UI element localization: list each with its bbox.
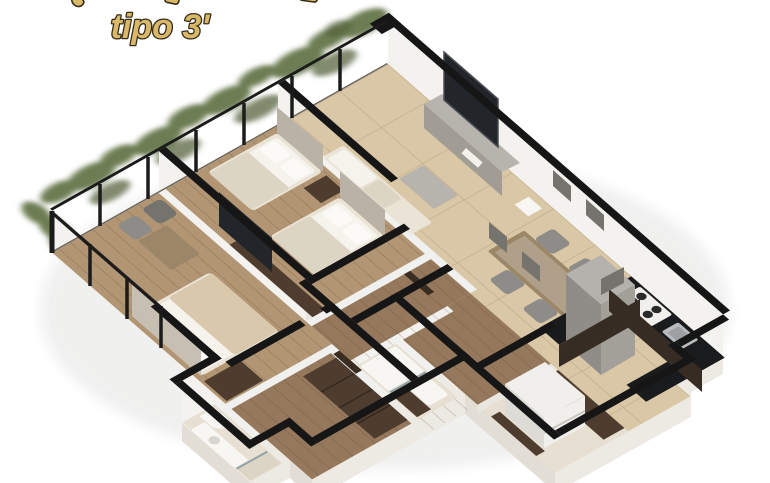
cropped-glyph bbox=[164, 0, 179, 5]
cropped-title-remnant bbox=[72, 0, 318, 7]
cropped-glyph bbox=[299, 0, 318, 2]
plan-title: tipo 3' bbox=[111, 8, 212, 46]
floor-plan-svg: tipo 3' bbox=[0, 0, 770, 483]
cropped-glyph bbox=[72, 0, 85, 7]
floor-plan-render: tipo 3' bbox=[0, 0, 770, 483]
plan-title-group: tipo 3' bbox=[72, 0, 318, 46]
